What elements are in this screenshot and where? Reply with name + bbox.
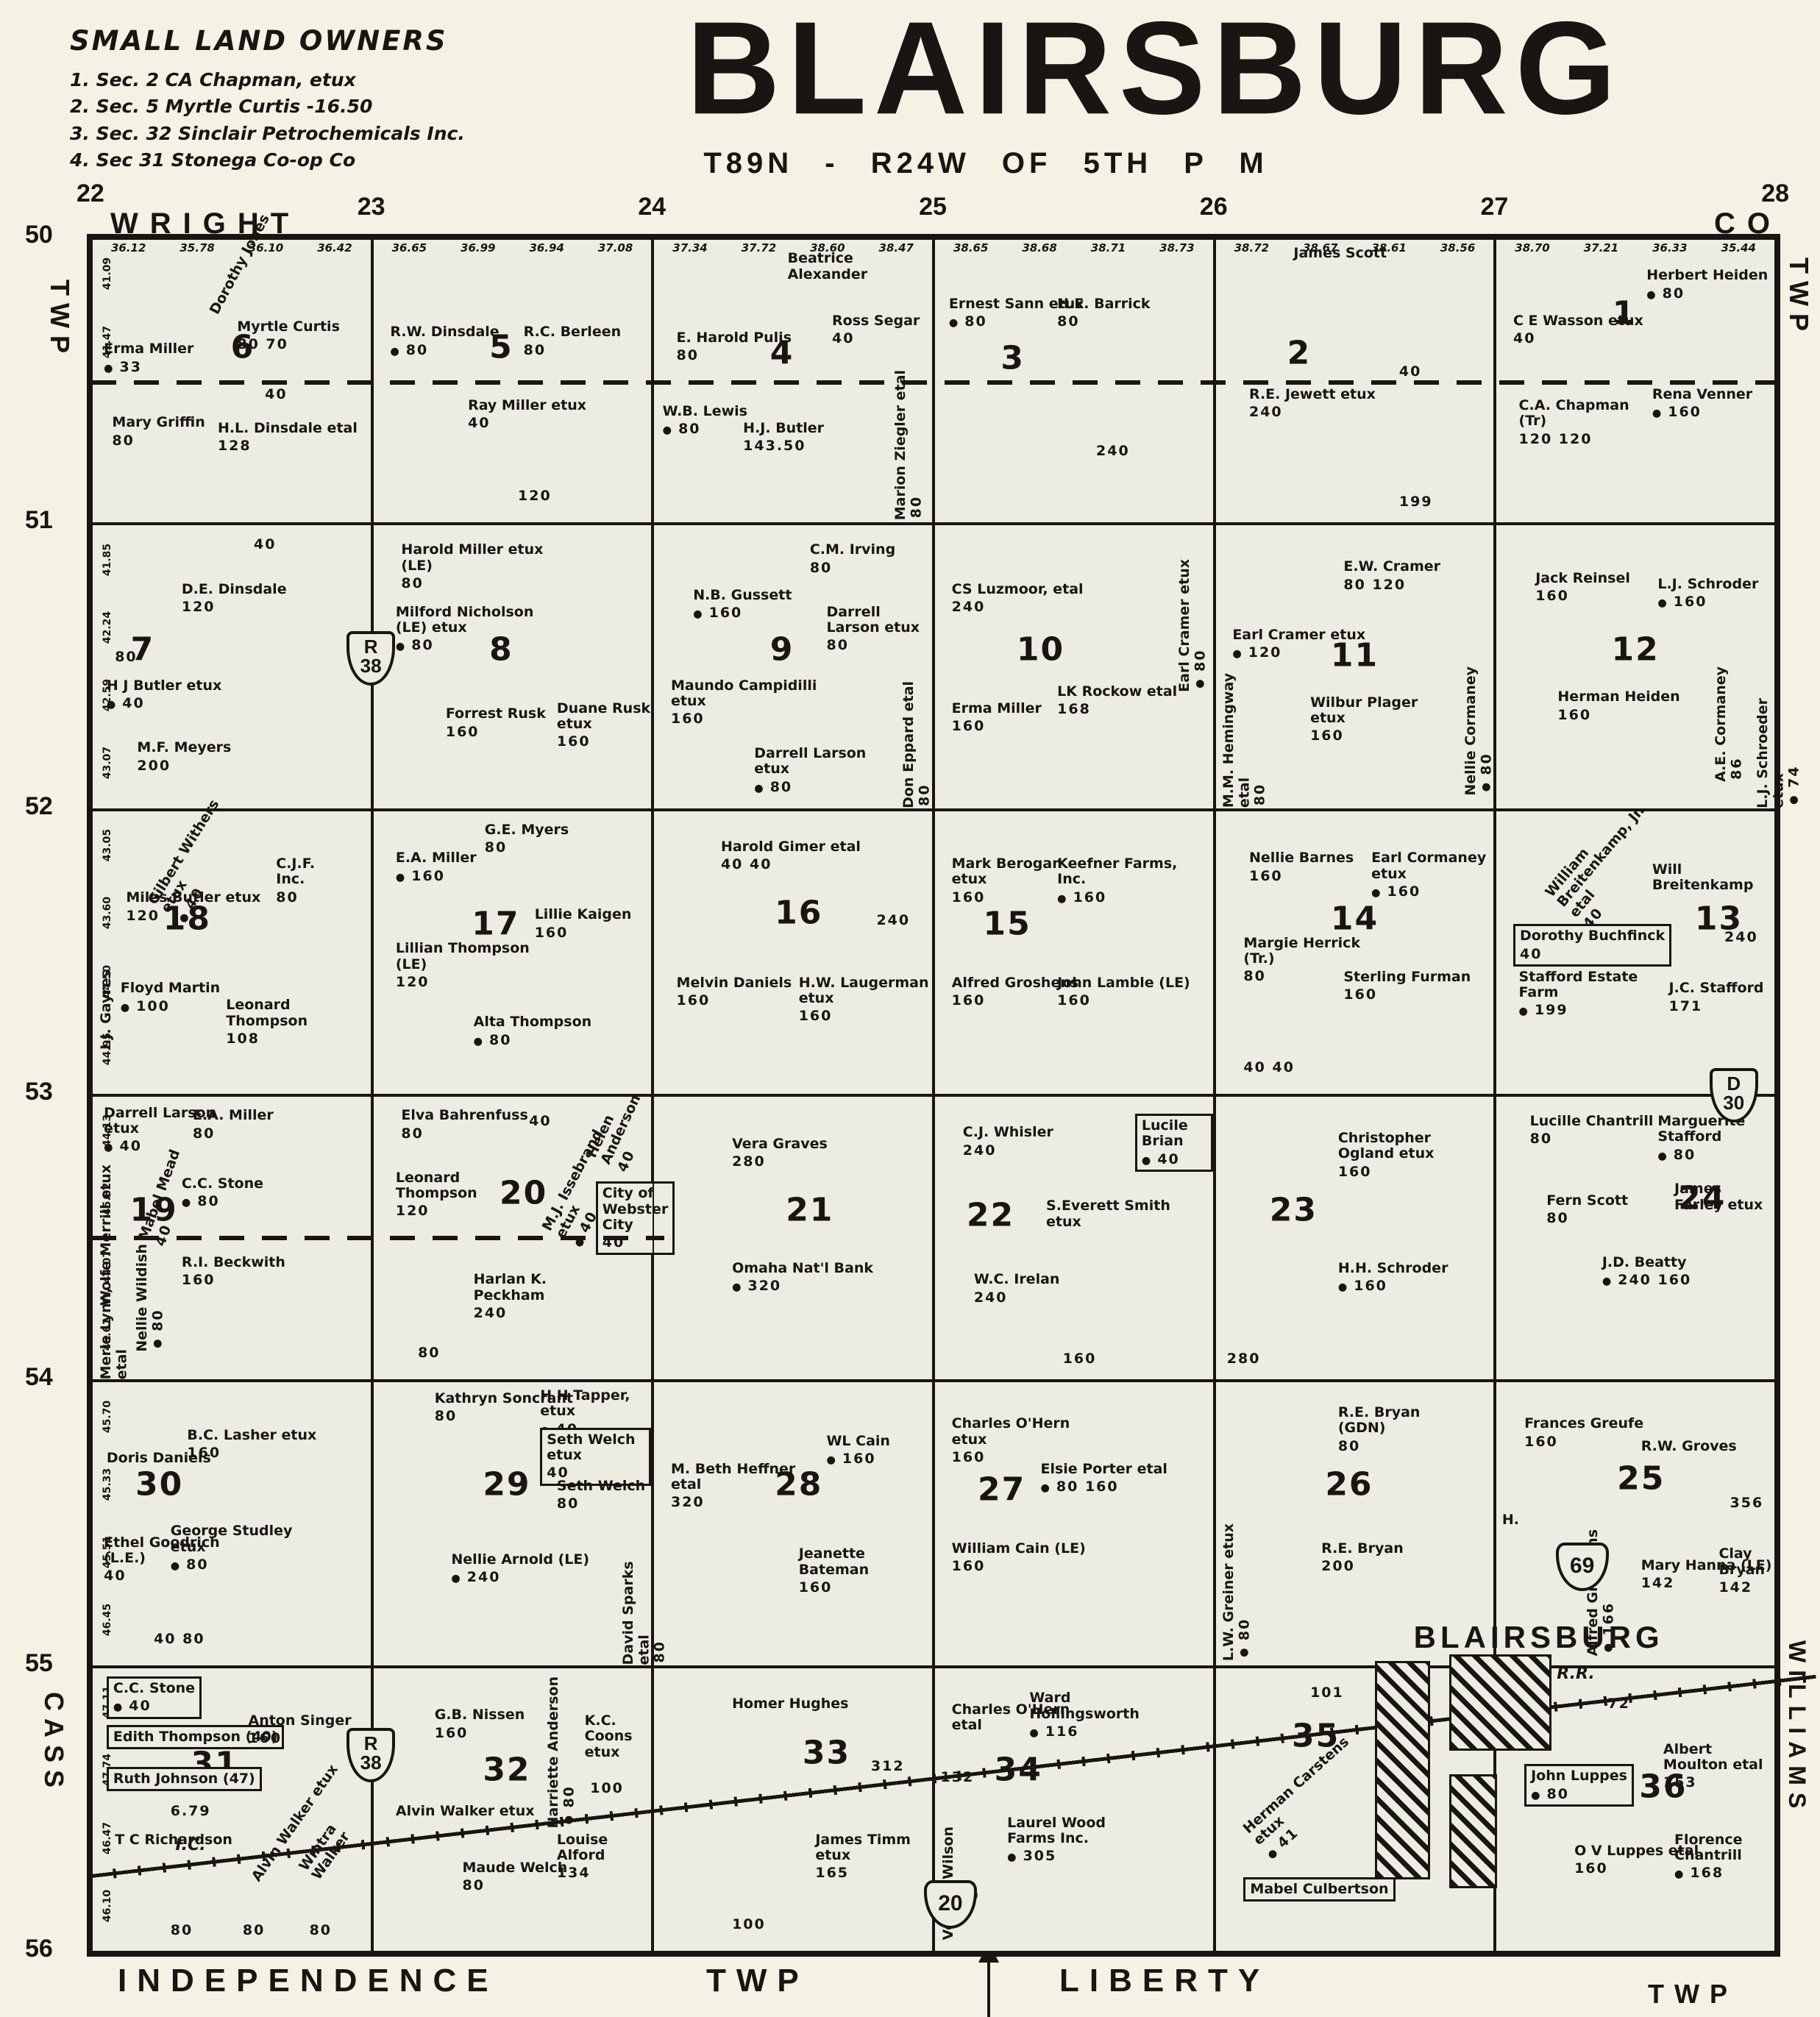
acreage-value: 80 160 xyxy=(1040,1479,1167,1495)
parcel-label: R.W. Dinsdale80 xyxy=(390,324,499,358)
owner-name: N.B. Gussett xyxy=(693,587,792,603)
acreage-value: 356 xyxy=(1730,1495,1764,1511)
parcel-label: C.J.F. Inc.80 xyxy=(276,856,315,906)
owner-name: Nellie Arnold (LE) xyxy=(451,1551,589,1568)
owner-name: L.J. Schroder xyxy=(1657,576,1758,592)
acreage-value: 240 xyxy=(451,1570,589,1585)
parcel-label: H J Butler etux40 xyxy=(107,678,221,712)
parcel-label: C.M. Irving80 xyxy=(810,542,895,576)
acreage-value: 160 xyxy=(693,605,792,621)
owner-name: Keefner Farms, Inc. xyxy=(1057,855,1177,887)
owner-name: Stafford Estate Farm xyxy=(1519,969,1638,1000)
acreage-value: 128 xyxy=(218,438,358,454)
owner-name: G.E. Myers xyxy=(485,822,569,838)
acreage-value: 280 xyxy=(732,1154,828,1170)
parcel-label: Ruth Johnson (47) xyxy=(107,1767,262,1791)
acreage-label: 40 40 xyxy=(1243,1060,1295,1075)
parcel-label: H.J. Butler143.50 xyxy=(743,421,824,455)
parcel-label: CS Luzmoor, etal240 xyxy=(952,582,1084,616)
acreage-value: 168 xyxy=(1674,1865,1774,1881)
acreage-value: 80 xyxy=(243,1922,265,1938)
left-mile-number: 54 xyxy=(25,1363,53,1392)
acreage-value: 120 xyxy=(182,600,287,615)
acreage-value: 74 xyxy=(1786,661,1802,806)
owner-name: Fern Scott xyxy=(1546,1192,1628,1209)
top-mile-number: 26 xyxy=(1200,193,1228,221)
parcel-label: E.A. Miller160 xyxy=(396,850,477,884)
parcel-label: Herbert Heiden80 xyxy=(1646,268,1768,302)
acreage-label: 40 80 xyxy=(154,1632,205,1647)
owner-name: C.M. Irving xyxy=(810,541,895,558)
town-name-label: BLAIRSBURG xyxy=(1414,1620,1664,1655)
west-edge-acreages: 45.7045.3345.5146.45 xyxy=(93,1382,109,1665)
section-number: 17 xyxy=(472,906,519,943)
acreage-value: 160 xyxy=(557,734,651,750)
parcel-label: Will Breitenkamp xyxy=(1652,862,1774,894)
acreage-value: 80 xyxy=(1338,1439,1421,1454)
parcel-label: Darrell Larson etux80 xyxy=(826,605,932,654)
plat-map-page: SMALL LAND OWNERS 1. Sec. 2 CA Chapman, … xyxy=(0,0,1820,2017)
acreage-value: 108 xyxy=(226,1031,370,1047)
acreage-label: 312 xyxy=(871,1759,905,1774)
acreage-label: 40 xyxy=(529,1114,551,1129)
parcel-label: Lucille Chantrill80 xyxy=(1530,1114,1654,1148)
owner-name: Homer Hughes xyxy=(732,1696,848,1712)
parcel-label: R.E. Bryan (GDN)80 xyxy=(1338,1405,1421,1454)
section-number: 25 xyxy=(1617,1459,1665,1497)
parcel-label: L.J. Schroder160 xyxy=(1657,577,1758,611)
parcel-label: Milford Nicholson (LE) etux80 xyxy=(396,605,543,654)
acreage-value: 80 xyxy=(401,1126,527,1142)
owner-name: George Studley etux xyxy=(171,1523,293,1554)
parcel-label: George Studley etux80 xyxy=(171,1523,318,1573)
parcel-label: Miles Butler etux120 xyxy=(126,890,260,924)
parcel-label: B.C. Lasher etux160 xyxy=(187,1428,316,1462)
parcel-label: L.W. Greiner etux80 xyxy=(1221,1523,1253,1661)
section-16: 16Harold Gimer etal40 40240Melvin Daniel… xyxy=(653,810,934,1095)
left-mile-number: 55 xyxy=(25,1649,53,1678)
parcel-label: J.D. Beatty240 160 xyxy=(1602,1255,1691,1289)
acreage-value: 80 xyxy=(115,649,137,665)
parcel-label: Vera Graves280 xyxy=(732,1136,828,1170)
section-11: 11E.W. Cramer80 120Earl Cramer etux120M.… xyxy=(1215,524,1496,809)
acreage-value: 80 xyxy=(182,1194,263,1209)
map-title: BLAIRSBURG xyxy=(544,0,1766,144)
parcel-label: Louise Alford134 xyxy=(557,1832,651,1882)
owner-name: R.E. Bryan xyxy=(1321,1540,1404,1557)
parcel-label: C E Wasson etux40 xyxy=(1513,313,1643,347)
parcel-label: R.E. Jewett etux240 xyxy=(1249,387,1376,421)
owner-name: Merle Lynn, etal xyxy=(98,1288,129,1380)
owner-name: Ward Hollingsworth xyxy=(1029,1690,1140,1721)
parcel-label: Harold Miller etux (LE)80 xyxy=(401,542,548,591)
parcel-label: Maundo Campidilli etux160 xyxy=(671,678,818,728)
owner-name: Don Eppard etal xyxy=(900,681,917,808)
owner-name: Mary Griffin xyxy=(112,414,205,430)
parcel-label: Alvin Walker etux xyxy=(396,1804,535,1819)
acreage-value: 100 xyxy=(732,1916,766,1932)
south-independence-label: INDEPENDENCE xyxy=(118,1963,499,1999)
top-mile-number: 27 xyxy=(1481,193,1509,221)
parcel-label: Christopher Ogland etux160 xyxy=(1338,1131,1485,1180)
section-15: 15Mark Berogan etux160Keefner Farms, Inc… xyxy=(934,810,1215,1095)
parcel-label: E. Harold Pulis80 xyxy=(677,330,792,364)
acreage-value: 199 xyxy=(1399,494,1433,510)
acreage-value: 80 xyxy=(1546,1211,1628,1226)
acreage-value: 200 xyxy=(1321,1559,1404,1574)
acreage-value: 6.79 xyxy=(171,1803,211,1819)
owner-name: Lucille Chantrill xyxy=(1530,1113,1654,1129)
owner-name: H H Tapper, etux xyxy=(540,1387,630,1419)
acreage-value: 80 xyxy=(463,1878,568,1893)
owner-name: Milford Nicholson (LE) etux xyxy=(396,604,534,636)
owner-name: A.E. Cormaney xyxy=(1713,666,1729,782)
owner-name: Lillie Kaigen xyxy=(535,906,632,922)
section-number: 9 xyxy=(770,631,795,669)
acreage-value: 160 xyxy=(182,1273,285,1288)
acreage-value: 80 xyxy=(826,638,932,653)
parcel-label: Nellie Cormaney80 xyxy=(1463,666,1495,796)
owner-name: James Timm etux xyxy=(815,1832,911,1863)
parcel-label: C.J. Whisler240 xyxy=(963,1125,1053,1159)
top-mile-number: 25 xyxy=(919,193,947,221)
owner-name: Seth Welch xyxy=(557,1478,645,1494)
acreage-value: 80 xyxy=(150,1244,166,1350)
parcel-label: S.Everett Smith etux xyxy=(1046,1198,1193,1230)
acreage-value: 80 xyxy=(1479,666,1494,794)
parcel-label: Charles O'Hern etux160 xyxy=(952,1416,1099,1465)
acreage-label: 160 xyxy=(1063,1351,1097,1367)
left-mile-number: 50 xyxy=(25,221,53,249)
acreage-label: 280 xyxy=(1227,1351,1261,1367)
government-lot-acreages: 38.7037.2136.3335.44 xyxy=(1498,241,1773,255)
parcel-label: L.J. Schroeder etux74 xyxy=(1755,661,1799,808)
section-number: 2 xyxy=(1287,334,1312,371)
section-18: 1843.0543.6044.5044.95Gilbert Withers et… xyxy=(91,810,372,1095)
acreage-value: 160 xyxy=(1057,890,1204,906)
acreage-value: 171 xyxy=(1668,999,1763,1014)
small-land-owners-legend: SMALL LAND OWNERS 1. Sec. 2 CA Chapman, … xyxy=(70,25,511,174)
owner-name: Herman Heiden xyxy=(1557,689,1679,705)
owner-name: R.E. Jewett etux xyxy=(1249,386,1376,402)
section-number: 30 xyxy=(135,1465,183,1503)
south-east-twp-label: TWP xyxy=(1648,1979,1738,2010)
owner-name: Dorothy Buchfinck xyxy=(1520,928,1665,944)
owner-name: Elsie Porter etal xyxy=(1040,1461,1167,1477)
owner-name: David Sparks etal xyxy=(620,1562,652,1665)
parcel-label: M.F. Meyers200 xyxy=(137,740,231,774)
owner-name: H.W. Laugerman etux xyxy=(799,975,929,1006)
acreage-value: 160 xyxy=(677,993,792,1008)
owner-name: Earl Cramer etux xyxy=(1232,627,1365,643)
parcel-label: James Timm etux165 xyxy=(815,1832,932,1882)
parcel-label: C.C. Stone40 xyxy=(107,1676,202,1719)
owner-name: Earl Cramer etux xyxy=(1176,559,1192,692)
acreage-label: 100 xyxy=(590,1781,624,1796)
owner-name: Beatrice Alexander xyxy=(788,250,868,282)
acreage-label: 356 xyxy=(1730,1495,1764,1511)
acreage-value: 80 xyxy=(557,1496,645,1512)
acreage-value: 160 xyxy=(1338,1164,1485,1180)
owner-name: Alta Thompson xyxy=(474,1014,592,1030)
parcel-label: Sterling Furman160 xyxy=(1343,970,1471,1003)
acreage-value: 100 xyxy=(590,1780,624,1796)
acreage-value: 80 xyxy=(1057,314,1150,330)
acreage-value: 160 xyxy=(952,1559,1086,1574)
owner-name: Sterling Furman xyxy=(1343,969,1471,985)
acreage-label: 80 xyxy=(243,1923,265,1938)
parcel-label: Frances Greufe160 xyxy=(1524,1416,1643,1450)
acreage-value: 143.50 xyxy=(743,438,824,454)
owner-name: Erma Miller xyxy=(104,341,193,357)
parcel-label: K.C. Coons etux xyxy=(585,1713,652,1760)
owner-name: R.W. Dinsdale xyxy=(390,324,499,340)
section-28: 28M. Beth Heffner etal320WL Cain160Jeane… xyxy=(653,1381,934,1666)
owner-name: G.B. Nissen xyxy=(435,1707,525,1723)
legend-item: 1. Sec. 2 CA Chapman, etux xyxy=(70,67,511,93)
owner-name: Erma Miller xyxy=(952,700,1042,716)
parcel-label: Florence Chantrill168 xyxy=(1674,1832,1774,1882)
acreage-value: 199 xyxy=(1519,1003,1666,1018)
acreage-value: 120 120 xyxy=(1519,432,1629,447)
owner-name: James Farley etux xyxy=(1674,1181,1763,1212)
acreage-value: 40 xyxy=(254,536,276,552)
acreage-value: 120 xyxy=(126,908,260,924)
owner-name: Nellie Barnes xyxy=(1249,850,1354,866)
acreage-value: 40 xyxy=(1399,363,1421,380)
owner-name: Elva Bahrenfuss xyxy=(401,1107,527,1123)
owner-name: William Cain (LE) xyxy=(952,1540,1086,1557)
east-williams-label: WILLIAMS xyxy=(1783,1640,1810,1815)
parcel-label: John Lamble (LE)160 xyxy=(1057,975,1190,1009)
owner-name: Jeanette Bateman xyxy=(799,1545,869,1577)
owner-name: Christopher Ogland etux xyxy=(1338,1130,1435,1162)
railroad-rr-label: R.R. xyxy=(1557,1665,1594,1683)
owner-name: Lucile Brian xyxy=(1142,1117,1188,1149)
map-area: 636.1235.7836.1036.4241.0941.47Dorothy J… xyxy=(87,234,1780,1957)
parcel-label: Homer Hughes xyxy=(732,1696,848,1712)
parcel-label: Earl Cramer etux120 xyxy=(1232,627,1365,661)
parcel-label: Clay Bryan142 xyxy=(1718,1546,1774,1596)
acreage-value: 320 xyxy=(671,1495,818,1510)
acreage-value: 80 xyxy=(810,561,895,576)
owner-name: E.W. Cramer xyxy=(1343,558,1440,574)
acreage-value: 80 xyxy=(561,1676,577,1826)
section-22: 22C.J. Whisler240Lucile Brian40S.Everett… xyxy=(934,1095,1215,1381)
parcel-label: Herman Heiden160 xyxy=(1557,689,1679,723)
section-number: 23 xyxy=(1270,1191,1318,1228)
owner-name: Myrtle Curtis xyxy=(237,319,340,335)
owner-name: M.M. Hemingway etal xyxy=(1220,673,1252,808)
acreage-value: 160 xyxy=(1343,987,1471,1003)
acreage-value: 80 xyxy=(909,370,924,518)
acreage-value: 33 xyxy=(104,360,193,375)
acreage-value: 40 xyxy=(529,1113,551,1129)
acreage-label: 120 xyxy=(518,488,552,504)
section-number: 16 xyxy=(775,894,822,932)
acreage-value: 160 xyxy=(799,1580,932,1596)
parcel-label: Seth Welch etux40 xyxy=(540,1428,651,1486)
owner-name: H.J. Butler xyxy=(743,420,824,436)
parcel-label: Harriette Anderson80 xyxy=(546,1676,577,1829)
owner-name: M.F. Meyers xyxy=(137,739,231,755)
parcel-label: N.B. Gussett160 xyxy=(693,588,792,622)
west-cass-label: CASS xyxy=(38,1692,69,1795)
parcel-label: Ward Hollingsworth116 xyxy=(1029,1690,1176,1740)
acreage-value: 160 xyxy=(826,1451,889,1467)
acreage-value: 120 xyxy=(518,488,552,504)
acreage-value: 280 xyxy=(1227,1351,1261,1367)
acreage-value: 116 xyxy=(1029,1724,1176,1740)
acreage-value: 80 xyxy=(524,343,622,358)
acreage-value: 200 xyxy=(137,758,231,774)
owner-name: Earl Cormaney etux xyxy=(1371,850,1486,881)
owner-name: Miles Butler etux xyxy=(126,889,260,906)
acreage-value: 80 xyxy=(677,348,792,363)
owner-name: D.E. Dinsdale xyxy=(182,581,287,597)
parcel-label: Duane Rusk etux160 xyxy=(557,701,651,750)
acreage-value: 80 xyxy=(1192,559,1208,690)
section-7: 741.8542.2442.5943.0740D.E. Dinsdale1208… xyxy=(91,524,372,809)
parcel-label: H. xyxy=(1502,1512,1519,1528)
section-number: 32 xyxy=(483,1751,530,1789)
left-mile-number: 53 xyxy=(25,1078,53,1106)
section-number: 22 xyxy=(967,1197,1014,1234)
parcel-label: Maude Welch80 xyxy=(463,1860,568,1894)
section-number: 15 xyxy=(984,906,1031,943)
owner-name: Forrest Rusk xyxy=(446,705,546,722)
parcel-label: C.A. Chapman (Tr)120 120 xyxy=(1519,398,1629,447)
acreage-value: 312 xyxy=(871,1758,905,1774)
acreage-value: 80 xyxy=(276,890,315,906)
acreage-label: 240 xyxy=(876,913,910,928)
owner-name: J.D. Beatty xyxy=(1602,1254,1687,1270)
acreage-value: 305 xyxy=(1007,1849,1154,1864)
parcel-label: Rena Venner160 xyxy=(1652,387,1752,421)
acreage-value: 240 160 xyxy=(1602,1273,1691,1288)
government-lot-acreages: 36.1235.7836.1036.42 xyxy=(94,241,369,255)
owner-name: L.J. Schroeder etux xyxy=(1755,698,1786,808)
parcel-label: WL Cain160 xyxy=(826,1434,889,1468)
townsite-hatch-block xyxy=(1449,1774,1498,1888)
parcel-label: Leonard Thompson120 xyxy=(396,1170,543,1220)
acreage-value: 40 xyxy=(265,386,287,402)
acreage-value: 80 xyxy=(390,343,499,358)
owner-name: C.J. Whisler xyxy=(963,1124,1053,1140)
parcel-label: James Scott xyxy=(1293,246,1387,261)
acreage-value: 160 xyxy=(435,1726,525,1741)
parcel-label: Ray Miller etux40 xyxy=(468,398,586,432)
section-12: 12Jack Reinsel160L.J. Schroder160Herman … xyxy=(1495,524,1776,809)
owner-name: Leonard Thompson xyxy=(226,997,308,1028)
east-twp-label: TWP xyxy=(1783,257,1814,338)
acreage-value: 240 xyxy=(1249,405,1376,420)
acreage-value: 40 xyxy=(1520,947,1665,962)
owner-name: I.J. Gayres xyxy=(98,970,114,1050)
parcel-label: Omaha Nat'l Bank320 xyxy=(732,1261,873,1295)
acreage-value: 160 xyxy=(1338,1278,1448,1294)
government-lot-acreages: 38.6538.6838.7138.73 xyxy=(936,241,1212,255)
parcel-label: J.C. Stafford171 xyxy=(1668,981,1763,1014)
acreage-value: 80 xyxy=(193,1126,274,1142)
parcel-label: H.H. Schroder160 xyxy=(1338,1261,1448,1295)
acreage-value: 142 xyxy=(1718,1580,1774,1596)
acreage-value: 80 xyxy=(310,1922,332,1938)
owner-name: R.C. Berleen xyxy=(524,324,622,340)
legend-item: 3. Sec. 32 Sinclair Petrochemicals Inc. xyxy=(70,121,511,147)
acreage-label: 101 xyxy=(1310,1685,1344,1701)
acreage-value: 40 xyxy=(1142,1152,1206,1167)
parcel-label: R.E. Bryan200 xyxy=(1321,1541,1404,1575)
parcel-label: Mary Griffin80 xyxy=(112,415,205,449)
legend-item: 4. Sec 31 Stonega Co-op Co xyxy=(70,147,511,174)
acreage-value: 80 xyxy=(1253,666,1268,805)
acreage-value: 160 xyxy=(1310,728,1457,744)
acreage-value: 240 xyxy=(963,1143,1053,1159)
parcel-label: H.W. Laugerman etux160 xyxy=(799,975,932,1025)
acreage-value: 80 xyxy=(474,1033,592,1048)
acreage-value: 80 xyxy=(485,840,569,855)
parcel-label: R.W. Groves xyxy=(1641,1439,1737,1454)
owner-name: E.A. Miller xyxy=(396,850,477,866)
parcel-label: Jack Reinsel160 xyxy=(1535,571,1630,605)
acreage-value: 100 xyxy=(121,999,220,1014)
acreage-value: 101 xyxy=(1310,1685,1344,1701)
acreage-label: 100 xyxy=(732,1917,766,1932)
parcel-label: Melvin Daniels160 xyxy=(677,975,792,1009)
parcel-label: D.E. Dinsdale120 xyxy=(182,582,287,616)
acreage-label: 40 xyxy=(1399,364,1421,380)
acreage-value: 160 xyxy=(1652,405,1752,420)
parcel-label: Elsie Porter etal80 160 xyxy=(1040,1462,1167,1495)
north-arrow xyxy=(987,1951,990,2017)
acreage-value: 80 xyxy=(917,681,933,806)
acreage-value: 80 xyxy=(112,433,205,449)
parcel-label: E.W. Cramer80 120 xyxy=(1343,559,1440,593)
parcel-label: I.J. Gayres xyxy=(99,970,114,1050)
map-subtitle: T89N - R24W OF 5TH P M xyxy=(544,147,1427,180)
acreage-value: 40 xyxy=(113,1698,195,1714)
parcel-label: Alta Thompson80 xyxy=(474,1014,592,1048)
parcel-label: Ross Segar40 xyxy=(832,313,920,347)
acreage-value: 40 xyxy=(468,416,586,431)
acreage-label: 199 xyxy=(1399,494,1433,510)
owner-name: Louise Alford xyxy=(557,1832,608,1863)
owner-name: E. Harold Pulis xyxy=(677,330,792,346)
owner-name: Seth Welch etux xyxy=(547,1431,635,1463)
owner-name: Mabel Culbertson xyxy=(1250,1881,1388,1897)
owner-name: T C Richardson xyxy=(115,1832,232,1848)
owner-name: CS Luzmoor, etal xyxy=(952,581,1084,597)
section-24: 24Lucille Chantrill80Marguerite Stafford… xyxy=(1495,1095,1776,1381)
section-number: 26 xyxy=(1325,1465,1373,1503)
acreage-value: 40 40 xyxy=(721,857,861,872)
parcel-label: H.L. Dinsdale etal128 xyxy=(218,421,358,455)
acreage-value: 80 xyxy=(401,576,548,591)
parcel-label: M. Beth Heffner etal320 xyxy=(671,1462,818,1511)
owner-name: Alvin Walker etux xyxy=(396,1803,535,1819)
owner-name: M. Beth Heffner etal xyxy=(671,1461,795,1493)
section-8: 8Harold Miller etux (LE)80Milford Nichol… xyxy=(372,524,653,809)
owner-name: R.E. Bryan (GDN) xyxy=(1338,1404,1421,1436)
parcel-label: R.I. Beckwith160 xyxy=(182,1255,285,1289)
parcel-label: Nellie Wildish80 xyxy=(135,1244,166,1352)
section-14: 14Nellie Barnes160Earl Cormaney etux160M… xyxy=(1215,810,1496,1095)
acreage-value: 80 xyxy=(1531,1787,1627,1802)
acreage-value: 80 xyxy=(418,1345,440,1361)
owner-name: Darrell Larson etux xyxy=(826,604,920,636)
owner-name: B.C. Lasher etux xyxy=(187,1427,316,1443)
